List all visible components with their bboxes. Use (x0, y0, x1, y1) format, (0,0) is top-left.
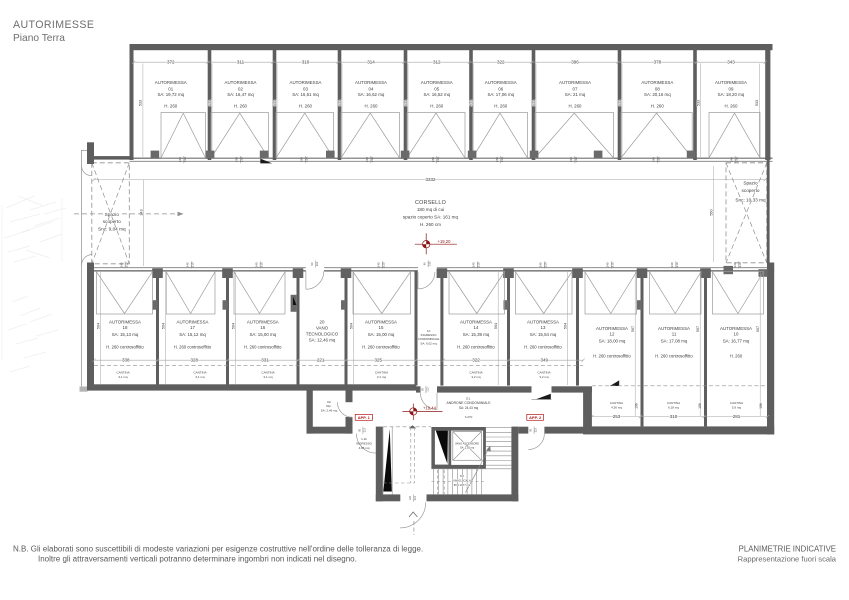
svg-text:567: 567 (756, 326, 760, 332)
svg-text:B=4 1977 ms: B=4 1977 ms (454, 483, 471, 487)
svg-text:550: 550 (709, 209, 713, 215)
svg-text:SA: 17,08 mq: SA: 17,08 mq (661, 338, 688, 343)
svg-text:240: 240 (255, 262, 259, 267)
svg-text:+19,20: +19,20 (438, 239, 452, 244)
svg-text:h.270: h.270 (465, 415, 473, 419)
svg-text:16: 16 (260, 325, 265, 330)
svg-text:AUTORIMESSA: AUTORIMESSA (559, 80, 591, 85)
svg-text:210: 210 (414, 496, 417, 501)
svg-text:04: 04 (369, 86, 374, 91)
svg-text:Spazio: Spazio (743, 181, 758, 186)
svg-text:3,2 mq: 3,2 mq (539, 375, 549, 379)
svg-text:3,2 mq: 3,2 mq (471, 375, 481, 379)
svg-text:314: 314 (367, 60, 375, 65)
svg-text:533: 533 (469, 100, 473, 106)
svg-text:CORSELLO: CORSELLO (415, 200, 446, 206)
svg-text:02: 02 (238, 86, 243, 91)
svg-text:H. 260: H. 260 (365, 103, 378, 108)
svg-text:09: 09 (729, 86, 734, 91)
svg-text:CANTINA: CANTINA (667, 401, 680, 405)
svg-text:533: 533 (273, 100, 277, 106)
svg-text:SA: 17,06 mq: SA: 17,06 mq (487, 92, 514, 97)
svg-text:20: 20 (320, 319, 325, 324)
svg-text:AUTORIMESSA: AUTORIMESSA (527, 319, 559, 324)
svg-text:564: 564 (232, 323, 236, 329)
svg-text:06: 06 (498, 86, 503, 91)
svg-text:Inoltre gli attraversamenti ve: Inoltre gli attraversamenti verticali po… (38, 555, 357, 564)
svg-text:240: 240 (178, 157, 182, 162)
svg-text:240: 240 (120, 262, 124, 267)
svg-text:322: 322 (497, 60, 505, 65)
svg-text:210: 210 (535, 428, 538, 433)
svg-text:564: 564 (162, 323, 166, 329)
svg-text:H. 260 controsoffitto: H. 260 controsoffitto (593, 353, 631, 358)
svg-text:SA: 19,72 mq: SA: 19,72 mq (157, 92, 184, 97)
svg-text:13: 13 (541, 325, 546, 330)
svg-text:3,1 mq: 3,1 mq (118, 375, 128, 379)
svg-text:AUTORIMESSA: AUTORIMESSA (596, 326, 628, 331)
svg-text:331: 331 (261, 358, 269, 363)
svg-text:H. 260 controsoffitto: H. 260 controsoffitto (524, 345, 562, 350)
svg-text:17: 17 (190, 325, 195, 330)
svg-text:240: 240 (569, 157, 573, 162)
svg-text:378: 378 (654, 60, 662, 65)
svg-text:PLANIMETRIE INDICATIVE: PLANIMETRIE INDICATIVE (739, 545, 836, 554)
svg-text:240: 240 (606, 262, 610, 267)
svg-text:H. 260: H. 260 (730, 353, 743, 358)
svg-text:1.1b: 1.1b (361, 437, 367, 441)
svg-text:H. 260 controsoffitto: H. 260 controsoffitto (655, 353, 693, 358)
svg-text:221: 221 (317, 358, 325, 363)
svg-text:APP. 2: APP. 2 (529, 415, 542, 420)
svg-text:Piano Terra: Piano Terra (13, 33, 65, 44)
svg-text:SA: 6,02 mq: SA: 6,02 mq (420, 341, 437, 345)
svg-text:SA: 18,20 mq: SA: 18,20 mq (718, 92, 745, 97)
svg-text:07: 07 (573, 86, 578, 91)
svg-text:SA: 21 mq: SA: 21 mq (565, 92, 586, 97)
svg-text:4,36 mq: 4,36 mq (611, 405, 622, 409)
svg-text:VANO SCALA: VANO SCALA (453, 478, 471, 482)
svg-text:AUTORIMESSA: AUTORIMESSA (155, 80, 187, 85)
svg-text:APP. 1: APP. 1 (358, 415, 371, 420)
svg-text:567: 567 (696, 326, 700, 332)
svg-text:CANTINA: CANTINA (610, 401, 623, 405)
svg-text:AUTORIMESSA: AUTORIMESSA (109, 319, 141, 324)
svg-text:196: 196 (635, 403, 639, 409)
svg-text:240: 240 (652, 157, 656, 162)
svg-text:H. 260: H. 260 (430, 103, 443, 108)
svg-text:H. 260: H. 260 (234, 103, 247, 108)
svg-text:533: 533 (755, 100, 759, 106)
svg-text:H. 260 controsoffitto: H. 260 controsoffitto (362, 345, 400, 350)
svg-text:281: 281 (733, 414, 741, 419)
svg-text:338: 338 (122, 358, 130, 363)
svg-text:H. 260 controsoffitto: H. 260 controsoffitto (174, 345, 212, 350)
svg-text:AUTORIMESSA: AUTORIMESSA (715, 80, 747, 85)
svg-text:240: 240 (300, 157, 304, 162)
svg-text:240: 240 (539, 262, 543, 267)
svg-text:196: 196 (759, 403, 763, 409)
svg-text:SA: 16,51 mq: SA: 16,51 mq (292, 92, 319, 97)
svg-text:H. 260: H. 260 (651, 103, 664, 108)
svg-text:564: 564 (350, 323, 354, 329)
svg-text:3,1 mq: 3,1 mq (377, 375, 387, 379)
svg-text:AUTORIMESSA: AUTORIMESSA (720, 326, 752, 331)
svg-text:SA: 15,00 mq: SA: 15,00 mq (368, 332, 395, 337)
svg-text:H. 260 controsoffitto: H. 260 controsoffitto (244, 345, 282, 350)
svg-text:AUTORIMESSA: AUTORIMESSA (225, 80, 257, 85)
svg-text:396: 396 (571, 60, 579, 65)
svg-text:Snz: 9,04 mq: Snz: 9,04 mq (98, 226, 126, 231)
svg-text:8.2: 8.2 (460, 474, 464, 478)
svg-text:AUTORIMESSA: AUTORIMESSA (290, 80, 322, 85)
svg-text:VANO ASCENSORE: VANO ASCENSORE (455, 442, 479, 446)
svg-text:H. 260: H. 260 (494, 103, 507, 108)
svg-text:533: 533 (532, 100, 536, 106)
svg-text:AUTORIMESSA: AUTORIMESSA (485, 80, 517, 85)
svg-text:INGRESSO: INGRESSO (356, 442, 373, 446)
svg-text:533: 533 (404, 100, 408, 106)
svg-text:SA: 2,55 mq: SA: 2,55 mq (460, 445, 475, 449)
svg-text:311: 311 (237, 60, 245, 65)
svg-text:253: 253 (613, 414, 621, 419)
svg-text:H. 260: H. 260 (724, 103, 737, 108)
svg-text:SA: 12,46 mq: SA: 12,46 mq (309, 338, 336, 343)
svg-text:322: 322 (472, 358, 480, 363)
svg-text:349: 349 (541, 358, 549, 363)
svg-text:312: 312 (433, 60, 441, 65)
svg-text:196: 196 (698, 403, 702, 409)
svg-text:210: 210 (426, 387, 429, 392)
svg-text:325: 325 (375, 358, 383, 363)
svg-text:+19,44: +19,44 (423, 406, 437, 411)
svg-text:VANO: VANO (316, 325, 329, 330)
svg-text:240: 240 (733, 262, 737, 267)
svg-text:H. 260 cm: H. 260 cm (420, 222, 441, 227)
svg-text:328: 328 (191, 358, 199, 363)
svg-text:180 mq di cui: 180 mq di cui (417, 207, 444, 212)
svg-text:Spazio: Spazio (105, 212, 120, 217)
svg-text:240: 240 (472, 262, 476, 267)
svg-text:H. 260: H. 260 (569, 103, 582, 108)
svg-text:SA: 24,43 mq: SA: 24,43 mq (459, 406, 479, 410)
svg-text:533: 533 (139, 100, 143, 106)
svg-text:N.B. Gli elaborati sono suscet: N.B. Gli elaborati sono suscettibili di … (13, 545, 423, 554)
svg-text:D1.: D1. (466, 397, 471, 401)
svg-text:SA: 18,00 mq: SA: 18,00 mq (599, 338, 626, 343)
svg-text:240: 240 (377, 262, 381, 267)
svg-text:10: 10 (734, 332, 739, 337)
svg-text:SA: 15,12 mq: SA: 15,12 mq (179, 332, 206, 337)
svg-text:03: 03 (303, 86, 308, 91)
svg-text:AUTORIMESSA: AUTORIMESSA (177, 319, 209, 324)
svg-text:SA: 16,77 mq: SA: 16,77 mq (723, 338, 750, 343)
svg-text:3,1 mq: 3,1 mq (263, 375, 273, 379)
svg-text:240: 240 (730, 157, 734, 162)
svg-text:SA: 16,47 mq: SA: 16,47 mq (227, 92, 254, 97)
svg-text:AUTORIMESSA: AUTORIMESSA (421, 80, 453, 85)
svg-text:AUTORIMESSA: AUTORIMESSA (460, 319, 492, 324)
svg-text:533: 533 (618, 100, 622, 106)
svg-text:SA: 15,00 mq: SA: 15,00 mq (249, 332, 276, 337)
svg-text:564: 564 (97, 323, 101, 329)
svg-text:240: 240 (186, 262, 190, 267)
svg-text:CONDOMINIALE: CONDOMINIALE (418, 337, 440, 341)
svg-text:11: 11 (672, 332, 677, 337)
svg-text:H. 260: H. 260 (299, 103, 312, 108)
svg-text:SA: 15,54 mq: SA: 15,54 mq (530, 332, 557, 337)
svg-text:AUTORIMESSA: AUTORIMESSA (658, 326, 690, 331)
svg-text:SA: 16,52 mq: SA: 16,52 mq (423, 92, 450, 97)
svg-text:343: 343 (140, 209, 144, 215)
svg-text:533: 533 (697, 100, 701, 106)
svg-text:H. 260 controsoffitto: H. 260 controsoffitto (457, 345, 495, 350)
svg-text:H. 260: H. 260 (164, 103, 177, 108)
svg-text:4,85 mq: 4,85 mq (359, 446, 370, 450)
svg-text:ANDRONE CONDOMINIALE: ANDRONE CONDOMINIALE (446, 401, 491, 405)
svg-text:567: 567 (631, 326, 635, 332)
svg-text:scoperto: scoperto (742, 188, 760, 193)
svg-text:310: 310 (302, 60, 310, 65)
svg-text:533: 533 (208, 100, 212, 106)
svg-text:AUTORIMESSA: AUTORIMESSA (355, 80, 387, 85)
svg-text:343: 343 (727, 60, 735, 65)
svg-text:3332: 3332 (425, 177, 436, 182)
svg-text:spazio coperto SA: 161 mq: spazio coperto SA: 161 mq (403, 215, 459, 220)
svg-text:AUTORIMESSA: AUTORIMESSA (247, 319, 279, 324)
svg-text:08: 08 (655, 86, 660, 91)
svg-text:AUTORIMESSA: AUTORIMESSA (365, 319, 397, 324)
svg-text:372: 372 (167, 60, 175, 65)
svg-text:120: 120 (409, 496, 412, 501)
svg-text:scoperto: scoperto (103, 219, 121, 224)
svg-text:5,9 mq: 5,9 mq (732, 405, 742, 409)
svg-text:15: 15 (379, 325, 384, 330)
svg-text:SA: 15,39 mq: SA: 15,39 mq (463, 332, 490, 337)
svg-text:CANTINA: CANTINA (730, 401, 743, 405)
svg-text:240: 240 (235, 157, 239, 162)
svg-text:AUTORIMESSE: AUTORIMESSE (13, 19, 94, 31)
svg-text:240: 240 (495, 157, 499, 162)
svg-text:H. 260 controsoffitto: H. 260 controsoffitto (106, 345, 144, 350)
svg-text:533: 533 (338, 100, 342, 106)
svg-text:3,1 mq: 3,1 mq (195, 375, 205, 379)
svg-text:SA: 15,13 mq: SA: 15,13 mq (112, 332, 139, 337)
svg-text:240: 240 (670, 262, 674, 267)
svg-text:TECNOLOGICO: TECNOLOGICO (306, 331, 339, 336)
svg-text:AUTORIMESSA: AUTORIMESSA (641, 80, 673, 85)
svg-text:01: 01 (168, 86, 173, 91)
svg-text:210: 210 (363, 428, 366, 433)
svg-text:310: 310 (670, 414, 678, 419)
svg-text:564: 564 (564, 323, 568, 329)
svg-text:Rappresentazione fuori scala: Rappresentazione fuori scala (738, 555, 837, 564)
svg-text:SA: 16,62 mq: SA: 16,62 mq (358, 92, 385, 97)
svg-text:6,18 mq: 6,18 mq (668, 405, 679, 409)
svg-text:18: 18 (123, 325, 128, 330)
svg-text:240: 240 (431, 157, 435, 162)
svg-text:564: 564 (494, 323, 498, 329)
svg-text:SA: 20,16 mq: SA: 20,16 mq (644, 92, 671, 97)
svg-text:12: 12 (610, 332, 615, 337)
svg-text:05: 05 (434, 86, 439, 91)
svg-text:Snc: 10,33 mq: Snc: 10,33 mq (735, 198, 766, 203)
svg-text:14: 14 (474, 325, 479, 330)
svg-text:240: 240 (365, 157, 369, 162)
svg-text:SA: 2,46 mq: SA: 2,46 mq (321, 408, 338, 412)
